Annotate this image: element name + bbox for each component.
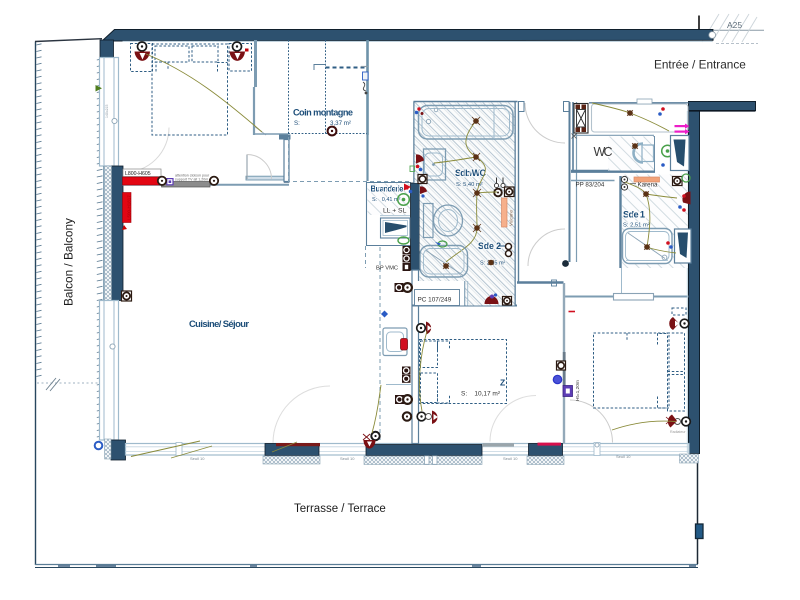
- svg-text:Sdb/WC: Sdb/WC: [455, 168, 487, 178]
- svg-text:S:: S:: [294, 120, 300, 127]
- svg-text:Entrée / Entrance: Entrée / Entrance: [654, 58, 746, 72]
- svg-text:WC: WC: [594, 145, 613, 159]
- svg-text:support TV alt 1,20m: support TV alt 1,20m: [175, 178, 208, 182]
- svg-text:140x215: 140x215: [105, 105, 109, 118]
- svg-text:S: 0,41 m²: S: 0,41 m²: [372, 197, 401, 203]
- svg-text:Terrasse / Terrace: Terrasse / Terrace: [294, 503, 386, 515]
- svg-text:Seuil 10: Seuil 10: [503, 456, 518, 461]
- svg-text:L500-H1817: L500-H1817: [127, 195, 132, 220]
- svg-text:Balcon / Balcony: Balcon / Balcony: [62, 218, 76, 306]
- svg-text:Seuil 10: Seuil 10: [616, 454, 631, 459]
- svg-text:Sde 1: Sde 1: [623, 210, 645, 220]
- svg-text:Radiateur: Radiateur: [670, 430, 686, 434]
- svg-text:S: 10,17 m²: S: 10,17 m²: [461, 391, 501, 398]
- svg-text:PC 107/249: PC 107/249: [418, 297, 452, 304]
- svg-text:Cuisine/ Séjour: Cuisine/ Séjour: [189, 318, 249, 329]
- svg-text:BP VMC: BP VMC: [376, 266, 398, 272]
- svg-text:Seuil 10: Seuil 10: [340, 456, 355, 461]
- svg-text:L800-H605: L800-H605: [125, 171, 151, 177]
- svg-text:S: 2,51 m²: S: 2,51 m²: [623, 223, 650, 229]
- svg-text:Seuil 10: Seuil 10: [190, 456, 205, 461]
- svg-text:Vulcano: Vulcano: [509, 209, 514, 226]
- svg-text:Sde 2: Sde 2: [478, 241, 501, 251]
- svg-text:Z: Z: [500, 378, 505, 388]
- svg-text:PP 83/204: PP 83/204: [576, 182, 605, 189]
- svg-text:Buanderie: Buanderie: [371, 185, 405, 194]
- svg-text:Coin montagne: Coin montagne: [293, 108, 353, 118]
- svg-text:Ht=1,20m: Ht=1,20m: [575, 380, 581, 401]
- svg-text:A25: A25: [727, 20, 742, 30]
- svg-text:LL + SL: LL + SL: [383, 208, 407, 215]
- svg-text:Karena: Karena: [638, 182, 659, 189]
